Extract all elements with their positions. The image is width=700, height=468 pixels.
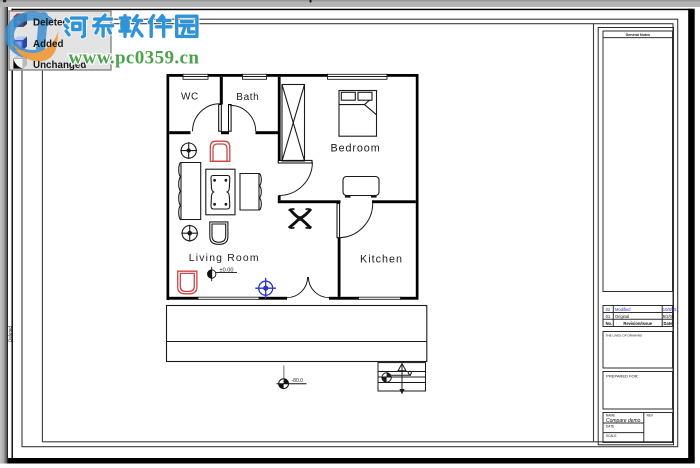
svg-text:www.pc0359.cn: www.pc0359.cn xyxy=(69,48,200,69)
svg-text:General Notes: General Notes xyxy=(626,33,650,37)
svg-text:9/2/05: 9/2/05 xyxy=(663,314,675,319)
svg-text:±0.00: ±0.00 xyxy=(220,268,234,274)
svg-text:THE LINES OF DRAWING: THE LINES OF DRAWING xyxy=(606,333,643,337)
svg-text:02: 02 xyxy=(606,307,611,312)
svg-text:NAME: NAME xyxy=(606,414,615,418)
svg-text:Date: Date xyxy=(664,321,674,326)
svg-text:Revision/Issue: Revision/Issue xyxy=(623,321,652,326)
svg-text:Modified: Modified xyxy=(615,307,631,312)
svg-text:WC: WC xyxy=(181,92,199,103)
svg-text:Living Room: Living Room xyxy=(189,253,260,264)
svg-text:Compare demo: Compare demo xyxy=(606,418,641,424)
svg-text:Bath: Bath xyxy=(236,92,259,103)
svg-text:Added: Added xyxy=(33,39,63,50)
svg-text:REV: REV xyxy=(647,414,654,418)
svg-text:PREPARED FOR:: PREPARED FOR: xyxy=(606,374,638,379)
svg-text:Kitchen: Kitchen xyxy=(360,254,403,266)
svg-text:No.: No. xyxy=(606,321,613,326)
svg-text:Bedroom: Bedroom xyxy=(331,143,381,155)
svg-text:01: 01 xyxy=(606,314,611,319)
svg-text:DATE: DATE xyxy=(606,424,614,428)
svg-text:10/8/05: 10/8/05 xyxy=(663,307,677,312)
svg-text:-80.0: -80.0 xyxy=(292,378,304,384)
svg-text:SCALE: SCALE xyxy=(606,434,616,438)
svg-text:Original: Original xyxy=(615,314,629,319)
svg-text:Deleted: Deleted xyxy=(8,326,13,342)
